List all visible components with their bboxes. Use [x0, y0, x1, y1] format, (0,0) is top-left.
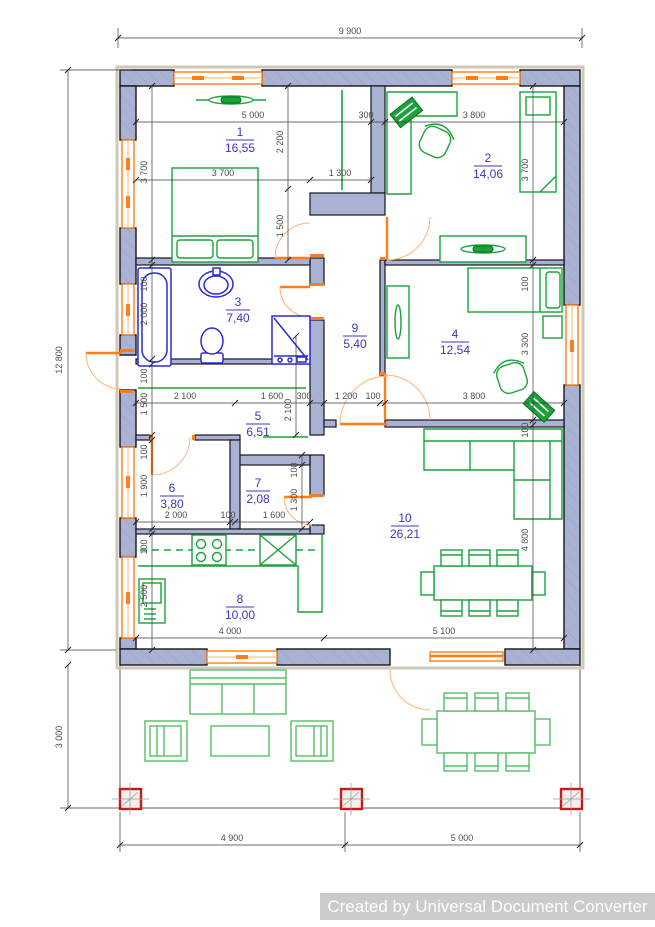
room-label: 1026,21 — [390, 511, 420, 541]
dim: 100 — [365, 391, 380, 401]
svg-text:6,51: 6,51 — [246, 425, 270, 439]
svg-text:10,00: 10,00 — [225, 608, 255, 622]
dim: 100 — [139, 444, 149, 459]
dim: 1 300 — [289, 489, 299, 512]
terrace-armchair-right — [291, 721, 333, 761]
svg-text:5: 5 — [255, 409, 262, 423]
bedroom1-furniture — [172, 96, 266, 262]
dresser — [440, 236, 526, 262]
dim: 1 600 — [263, 510, 286, 520]
room-label: 56,51 — [246, 409, 270, 439]
dining-set — [421, 550, 545, 616]
svg-text:7: 7 — [255, 476, 262, 490]
dim: 3 700 — [212, 168, 235, 178]
living-furniture — [421, 429, 562, 616]
svg-text:14,06: 14,06 — [473, 167, 503, 181]
dim: 2 000 — [165, 510, 188, 520]
dim: 3 800 — [463, 391, 486, 401]
dim: 9 900 — [339, 26, 362, 36]
terrace-dining-set — [422, 693, 550, 771]
dim: 3 800 — [463, 110, 486, 120]
terrace-coffee-table — [211, 726, 269, 756]
bathroom-fixtures — [138, 268, 310, 366]
dim: 4 900 — [221, 833, 244, 843]
svg-text:10: 10 — [398, 511, 412, 525]
window — [122, 284, 134, 335]
bathroom-door — [280, 283, 324, 320]
svg-text:9: 9 — [352, 321, 359, 335]
dim: 300 — [358, 110, 373, 120]
dim: 100 — [520, 422, 530, 437]
terrace-armchair-left — [145, 721, 187, 761]
sink — [260, 535, 296, 565]
dim: 3 000 — [54, 726, 64, 749]
window — [452, 72, 520, 84]
dim: 100 — [220, 510, 235, 520]
dim: 1 500 — [275, 215, 285, 238]
window — [207, 651, 277, 663]
window — [174, 72, 262, 84]
room-label: 95,40 — [343, 321, 367, 351]
dim: 3 300 — [520, 333, 530, 356]
washbasin — [199, 268, 233, 297]
dim: 4 000 — [219, 626, 242, 636]
dim: 100 — [520, 276, 530, 291]
dim: 2 100 — [174, 391, 197, 401]
dim: 2 500 — [139, 585, 149, 608]
svg-text:1: 1 — [237, 125, 244, 139]
wardrobe — [387, 286, 409, 358]
svg-text:3,80: 3,80 — [160, 497, 184, 511]
terrace-column — [112, 783, 149, 815]
room-label: 116,55 — [225, 125, 255, 155]
svg-text:4: 4 — [452, 327, 459, 341]
watermark: Created by Universal Document Converter — [320, 893, 655, 920]
dim: 5 000 — [242, 110, 265, 120]
room4-door — [380, 372, 430, 420]
room-label: 810,00 — [225, 592, 255, 622]
room2-door — [380, 217, 430, 260]
dim: 100 — [139, 276, 149, 291]
dim: 2 100 — [283, 399, 293, 422]
dim: 1 300 — [329, 168, 352, 178]
dim: 3 700 — [520, 159, 530, 182]
dim: 100 — [139, 539, 149, 554]
room-label: 72,08 — [246, 476, 270, 506]
svg-text:12,54: 12,54 — [440, 343, 470, 357]
desk-chair — [415, 119, 458, 162]
terrace-column — [553, 783, 590, 815]
svg-text:6: 6 — [169, 481, 176, 495]
floor-plan: 9 900 12 800 3 000 4 900 5 000 5 000 300… — [0, 0, 655, 927]
window — [122, 140, 134, 228]
dim: 3 700 — [139, 161, 149, 184]
window — [566, 305, 578, 385]
shower — [272, 316, 310, 364]
window — [122, 447, 134, 518]
svg-text:26,21: 26,21 — [390, 527, 420, 541]
room6-door — [150, 435, 195, 475]
svg-text:7,40: 7,40 — [226, 311, 250, 325]
room-label: 63,80 — [160, 481, 184, 511]
dim: 100 — [139, 368, 149, 383]
dim: 1 900 — [139, 475, 149, 498]
dim: 100 — [289, 462, 299, 477]
dim: 4 800 — [520, 529, 530, 552]
single-bed — [468, 268, 562, 312]
dim: 2 200 — [275, 131, 285, 154]
dim: 1 600 — [261, 391, 284, 401]
terrace-sofa — [190, 670, 286, 714]
svg-text:2: 2 — [485, 151, 492, 165]
dim: 5 000 — [451, 833, 474, 843]
svg-text:3: 3 — [235, 295, 242, 309]
dim: 1 500 — [139, 393, 149, 416]
svg-text:8: 8 — [237, 592, 244, 606]
window — [122, 557, 134, 638]
dim: 2 000 — [139, 303, 149, 326]
chair — [491, 356, 531, 396]
nightstand — [543, 316, 562, 338]
terrace-column — [333, 783, 370, 815]
svg-text:16,55: 16,55 — [225, 141, 255, 155]
room-label: 214,06 — [473, 151, 503, 181]
dim: 5 100 — [433, 626, 456, 636]
dim: 300 — [296, 391, 311, 401]
stove — [192, 535, 226, 565]
room-label: 412,54 — [440, 327, 470, 357]
dim: 1 200 — [335, 391, 358, 401]
svg-text:5,40: 5,40 — [343, 337, 367, 351]
svg-text:2,08: 2,08 — [246, 492, 270, 506]
dim: 12 800 — [54, 346, 64, 374]
corner-sofa — [424, 429, 562, 519]
laptop-icon — [523, 392, 555, 423]
room-label: 37,40 — [226, 295, 250, 325]
radiator — [196, 96, 266, 104]
terrace — [112, 665, 590, 815]
toilet — [201, 328, 223, 363]
